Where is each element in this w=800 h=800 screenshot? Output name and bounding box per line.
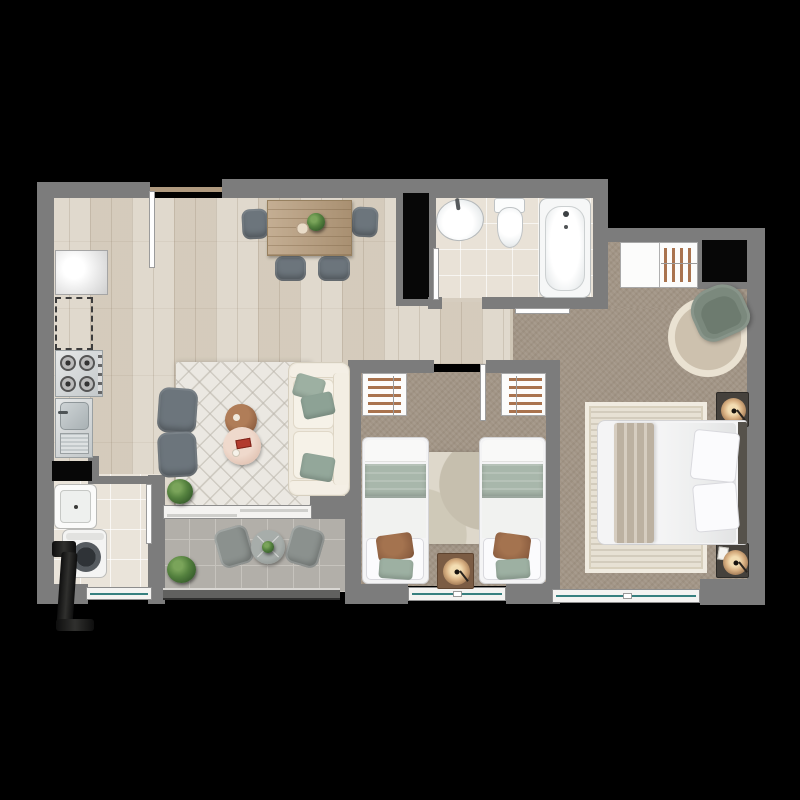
wall-bedroom2-pier-left	[361, 584, 408, 604]
sage-pillow-icon	[378, 558, 413, 580]
closet-rod	[393, 376, 394, 415]
duct-shaft2-icon	[702, 240, 747, 282]
bed-foot-fold	[482, 440, 543, 462]
duct-shaft-icon	[403, 193, 429, 299]
tub-inner	[545, 206, 585, 291]
table-plant-icon	[307, 213, 325, 231]
wall-right	[747, 228, 765, 604]
bed-pillow	[690, 429, 741, 484]
laundry-door-leaf	[146, 484, 152, 544]
wall-laundry-top	[95, 476, 148, 484]
armchair-icon	[157, 431, 198, 478]
hangers	[509, 378, 542, 413]
burner-icon	[79, 376, 95, 392]
cup-icon	[232, 449, 240, 457]
cup-icon	[233, 414, 240, 421]
bathroom-door-leaf	[433, 248, 439, 300]
book-icon	[235, 438, 251, 449]
wall-bedroom2-right	[546, 373, 560, 604]
terrace-railing-icon	[163, 588, 340, 600]
lamp-icon	[443, 558, 470, 585]
stove-icon	[55, 350, 103, 397]
sofa-icon	[288, 362, 350, 496]
single-bed-icon	[362, 437, 429, 584]
closet-rod	[661, 263, 697, 264]
master-window	[552, 589, 700, 603]
sink-bowl	[60, 402, 89, 430]
window-divider	[453, 591, 462, 597]
table-plant-icon	[262, 541, 274, 553]
window-divider	[623, 593, 632, 599]
drainboard	[60, 433, 89, 454]
bed-foot-fold	[365, 440, 426, 462]
wardrobe-hangers-icon	[362, 373, 407, 416]
hallway-floor	[398, 300, 512, 364]
stove-knobs	[98, 353, 102, 394]
closet-rod	[516, 376, 517, 415]
kitchen-sink-icon	[55, 398, 93, 458]
burner-icon	[60, 376, 76, 392]
terrace-plant-icon	[167, 556, 196, 583]
armchair-seat	[697, 292, 744, 337]
floor-plan	[0, 0, 800, 800]
entry-door-leaf	[149, 191, 155, 268]
bed-pillow	[692, 481, 740, 533]
master-wardrobe-icon	[620, 242, 698, 288]
wall-corner-bottom-right	[700, 579, 765, 605]
bathroom-threshold	[442, 298, 482, 302]
master-threshold	[510, 308, 513, 364]
hangers	[664, 248, 695, 282]
wall-terrace-living	[310, 496, 348, 519]
nightstand-icon	[716, 543, 749, 578]
window-glass	[90, 593, 148, 595]
dining-chair-icon	[275, 256, 306, 281]
double-bed-icon	[597, 420, 747, 545]
faucet-icon	[455, 198, 461, 210]
entry-threshold	[150, 187, 222, 192]
dining-chair-icon	[351, 206, 379, 237]
plate-icon	[296, 222, 309, 235]
plant-icon	[167, 479, 193, 504]
nightstand-icon	[437, 553, 474, 589]
vent-pipe-elbow	[56, 619, 94, 631]
bathtub-icon	[539, 198, 591, 298]
wardrobe-divider	[659, 243, 660, 287]
side-table-icon	[223, 427, 261, 465]
terrace-sliding-door	[163, 505, 312, 519]
armchair-icon	[156, 387, 198, 435]
wall-bath-right	[593, 198, 608, 309]
sliding-panel	[240, 509, 308, 512]
dishwasher-dashed-icon	[55, 297, 93, 350]
master-door-leaf	[515, 308, 570, 314]
laundry-tub-icon	[54, 484, 97, 529]
sage-pillow-icon	[495, 558, 530, 580]
burner-icon	[60, 355, 76, 371]
bistro-table-icon	[251, 530, 285, 564]
tub-drain	[564, 225, 568, 229]
bedroom2-accent-rug-icon	[428, 452, 480, 544]
wall-bedroom2-top-right	[486, 360, 560, 373]
wall-bedroom2-top-left	[348, 360, 434, 373]
dining-chair-icon	[241, 208, 269, 239]
single-bed-icon	[479, 437, 546, 584]
toilet-bowl	[497, 207, 523, 248]
washer-panel	[66, 533, 104, 540]
bed-blanket-icon	[614, 423, 654, 543]
bed-sage-blanket	[365, 464, 426, 498]
laundry-window	[86, 587, 152, 600]
faucet-icon	[58, 411, 68, 414]
bed-sage-blanket	[482, 464, 543, 498]
dining-chair-icon	[318, 256, 350, 281]
bedroom2-window	[408, 587, 506, 601]
bedroom2-door-leaf	[480, 364, 486, 421]
lamp-arm	[459, 570, 469, 581]
sliding-panel	[167, 514, 237, 517]
tub-faucet-icon	[563, 211, 569, 217]
kitchen-counter-icon	[52, 461, 92, 481]
lamp-arm	[738, 561, 748, 572]
bed-duvet	[482, 498, 543, 538]
hangers	[368, 378, 401, 413]
sofa-back	[333, 373, 349, 485]
wall-left	[37, 182, 54, 604]
refrigerator-icon	[55, 250, 108, 295]
burner-icon	[79, 355, 95, 371]
tub-drain	[74, 505, 78, 509]
lamp-icon	[723, 550, 748, 575]
wardrobe-hangers-icon	[501, 373, 546, 416]
bed-duvet	[365, 498, 426, 538]
